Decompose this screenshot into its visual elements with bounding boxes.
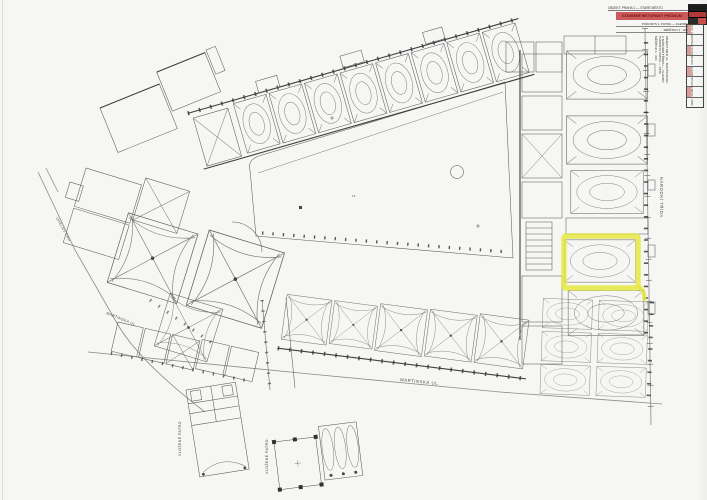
street-label-narodni-trida: NÁRODNÍ TŘÍDA — [659, 177, 664, 218]
note-inset-floor-2: VLOŽENÉ PATRO — [264, 439, 269, 474]
courtyard: 13 — [250, 82, 514, 258]
table-row: MĚŘÍTKO — [687, 66, 703, 76]
table-row: VED. ÚKOLU — [687, 25, 703, 34]
table-row: KRESLIL — [687, 45, 703, 55]
title-block: OBJEKT: PRAHA 1 — STARÉ MĚSTO STAVEBNĚ H… — [604, 2, 706, 114]
title-block-red-bar: STAVEBNĚ HISTORICKÝ PRŮZKUM — [616, 12, 688, 20]
table-row-label: Č. VÝKRESU — [691, 76, 695, 86]
table-row-label: MĚŘÍTKO — [691, 66, 695, 76]
bottom-wing — [278, 288, 534, 381]
top-wing — [184, 6, 534, 169]
table-row-label: VED. ÚKOLU — [691, 25, 695, 34]
passage-to-street — [262, 298, 295, 390]
title-block-table: VED. ÚKOLU VYPRACOVAL KRESLIL DATUM MĚŘÍ… — [686, 24, 704, 108]
table-row: Č. VÝKRESU — [687, 76, 703, 86]
plan-labels: UHELNÝ TRH MARTINSKÁ UL. MARTINSKÁ UL. N… — [55, 177, 664, 474]
highlight-annotation — [564, 236, 644, 301]
staircase — [526, 222, 552, 270]
title-block-side-notes: OBJEKT MEZI UL. MARTINSKOU A NÁRODNÍ TŘÍ… — [654, 36, 668, 106]
title-block-color-grid — [688, 4, 707, 25]
table-row-label: KRESLIL — [691, 45, 695, 55]
scanned-plan-page: 13 — [0, 0, 707, 500]
title-block-top-line: OBJEKT: PRAHA 1 — STARÉ MĚSTO — [608, 6, 688, 11]
title-block-subline-2: MĚŘÍTKO 1 : 200 — [616, 28, 688, 33]
table-row: VYPRACOVAL — [687, 34, 703, 44]
table-row: FORMÁT — [687, 86, 703, 96]
table-row: PARÉ — [687, 97, 703, 107]
street-lines — [38, 28, 662, 425]
courtyard-note: 13 — [352, 194, 356, 198]
street-label-martinska-west: MARTINSKÁ UL. — [106, 311, 138, 327]
floor-plan-drawing: 13 — [0, 0, 707, 500]
table-row-label: DATUM — [691, 56, 695, 65]
street-label-uhelny-trh: UHELNÝ TRH — [55, 217, 71, 243]
table-row: DATUM — [687, 55, 703, 65]
bottom-right-block — [540, 298, 652, 400]
highlight-box — [564, 236, 638, 288]
table-row-label: PARÉ — [691, 99, 695, 106]
table-row-label: VYPRACOVAL — [691, 34, 695, 44]
bottom-wing-west — [111, 320, 259, 386]
highlighted-room-vault — [564, 240, 635, 282]
table-row-label: FORMÁT — [691, 87, 695, 97]
west-cluster — [63, 160, 284, 362]
title-block-subline-1: PŮDORYS 1. PATRA — KLENBY — [616, 22, 688, 27]
south-center-fragments — [271, 422, 364, 492]
courtyard-well-circle — [451, 166, 464, 179]
south-west-detached-building — [186, 382, 249, 477]
note-inset-floor-1: VLOŽENÉ PATRO — [177, 421, 182, 456]
